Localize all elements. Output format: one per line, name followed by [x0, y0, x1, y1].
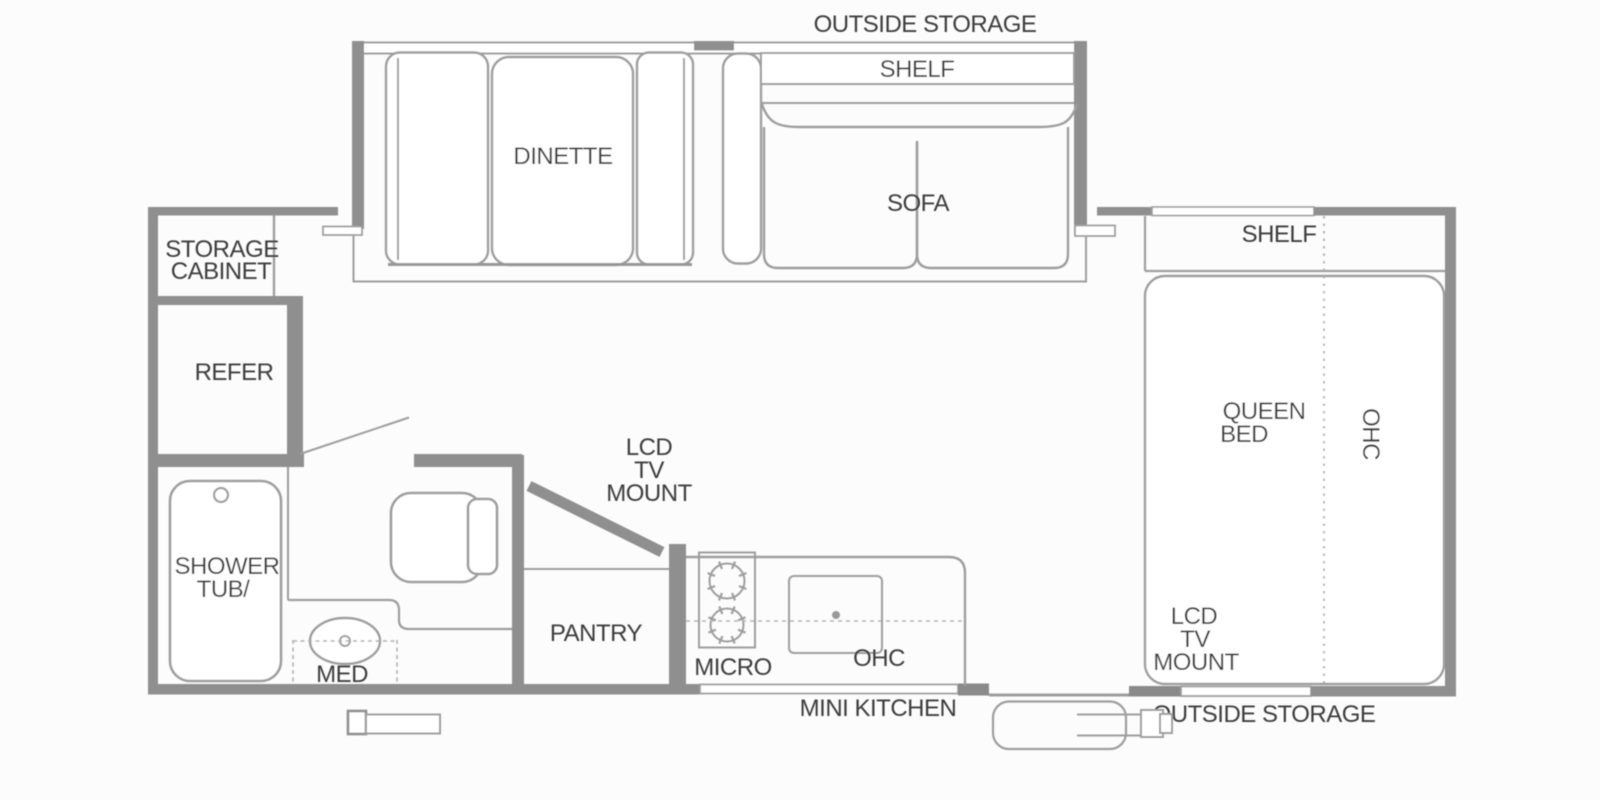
svg-text:PANTRY: PANTRY: [550, 620, 643, 647]
svg-text:MINI KITCHEN: MINI KITCHEN: [800, 695, 957, 722]
svg-text:BED: BED: [1220, 421, 1268, 448]
svg-text:TUB/: TUB/: [197, 576, 251, 603]
svg-text:MOUNT: MOUNT: [606, 480, 692, 507]
svg-text:REFER: REFER: [195, 359, 274, 386]
svg-text:DINETTE: DINETTE: [513, 143, 612, 170]
svg-text:SOFA: SOFA: [887, 190, 950, 217]
svg-text:OUTSIDE STORAGE: OUTSIDE STORAGE: [814, 11, 1037, 38]
svg-text:MOUNT: MOUNT: [1153, 649, 1239, 676]
svg-text:MED: MED: [316, 661, 368, 688]
svg-text:MICRO: MICRO: [694, 654, 772, 681]
svg-text:CABINET: CABINET: [171, 258, 272, 285]
svg-text:OHC: OHC: [1357, 408, 1384, 460]
svg-text:OUTSIDE STORAGE: OUTSIDE STORAGE: [1153, 701, 1376, 728]
svg-text:SHELF: SHELF: [880, 56, 955, 83]
svg-text:SHELF: SHELF: [1242, 221, 1317, 248]
svg-text:OHC: OHC: [853, 645, 905, 672]
